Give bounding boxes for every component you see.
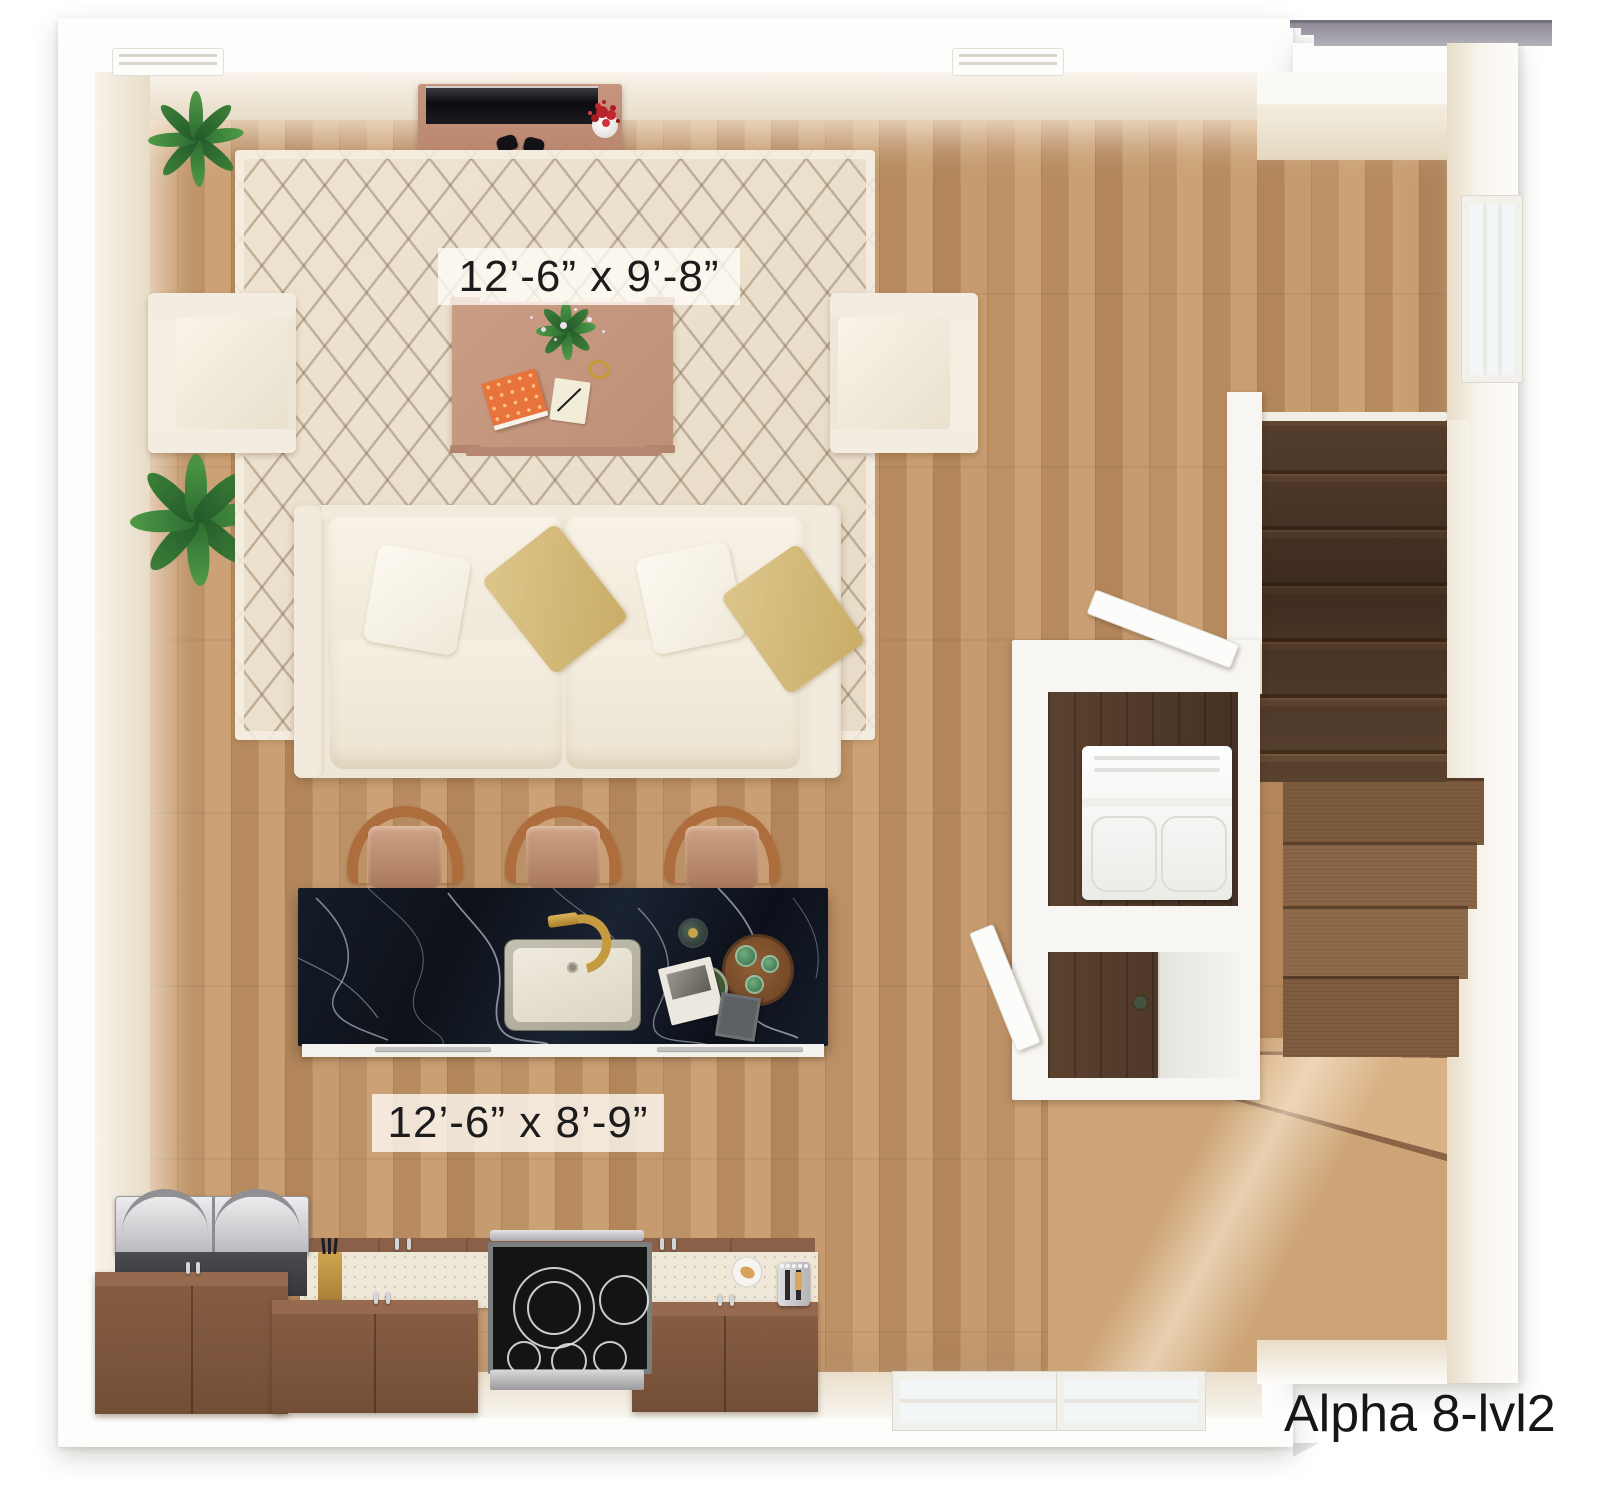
- cabinet-pull: [386, 1292, 390, 1304]
- foot-rail: [657, 1047, 803, 1051]
- armchair-right: [830, 293, 978, 453]
- notepad: [549, 378, 590, 425]
- pen: [557, 388, 581, 412]
- bar-stool: [664, 806, 780, 890]
- cabinet-pull: [407, 1238, 411, 1250]
- bar-stool: [505, 806, 621, 890]
- kitchen-dimension-label: 12’-6” x 8’-9”: [372, 1094, 664, 1152]
- sofa: [294, 505, 841, 778]
- base-cabinet: [95, 1272, 288, 1414]
- foot-rail: [375, 1047, 491, 1051]
- floorplan-page: 12’-6” x 9’-8”: [0, 0, 1600, 1500]
- base-cabinet: [272, 1300, 478, 1413]
- ceiling-vent: [952, 48, 1064, 76]
- cabinet-pull: [672, 1238, 676, 1250]
- tv: [426, 86, 598, 124]
- range-cooktop: [488, 1230, 646, 1392]
- napkin: [715, 992, 761, 1042]
- cabinet-pull: [660, 1238, 664, 1250]
- bar-stool: [347, 806, 463, 890]
- stacked-washer-dryer: [1082, 746, 1232, 900]
- door-hardware: [1134, 996, 1147, 1009]
- kitchen-dimension-text: 12’-6” x 8’-9”: [388, 1098, 649, 1148]
- ceiling-vent: [112, 48, 224, 76]
- armchair-left: [148, 293, 296, 453]
- stair-top-nosing: [1240, 412, 1447, 421]
- side-window: [1462, 196, 1522, 382]
- stair-soffit-face: [1257, 104, 1447, 160]
- red-flowers: [596, 106, 608, 118]
- stair-soffit: [1257, 72, 1447, 108]
- stair-winder-tread: [1283, 906, 1468, 979]
- cabinet-pull: [374, 1292, 378, 1304]
- corner-shadow: [1293, 1443, 1319, 1457]
- cabinet-pull: [196, 1262, 200, 1274]
- white-pillow: [362, 544, 472, 657]
- plan-title: Alpha 8-lvl2: [1284, 1384, 1544, 1440]
- bottom-window: [893, 1372, 1067, 1430]
- living-room-dimension-label: 12’-6” x 9’-8”: [438, 248, 740, 305]
- staircase-upper-run: [1240, 420, 1447, 782]
- wall-face-top: [95, 72, 1257, 120]
- toaster: [778, 1262, 810, 1306]
- stair-winder-tread: [1283, 976, 1459, 1057]
- cabinet-pull: [718, 1294, 722, 1306]
- living-room-dimension-text: 12’-6” x 9’-8”: [459, 252, 720, 302]
- bottom-window: [1057, 1372, 1205, 1430]
- base-cabinet: [632, 1302, 818, 1412]
- blossom-sprigs: [560, 322, 567, 329]
- marble-island: [298, 888, 828, 1046]
- plate-with-croissant: [733, 1258, 761, 1286]
- cabinet-pull: [395, 1238, 399, 1250]
- grill-appliance: [115, 1196, 309, 1256]
- bottle: [680, 920, 706, 946]
- wall-face-left: [95, 72, 150, 1370]
- sliding-door: [1158, 952, 1240, 1078]
- cabinet-pull: [730, 1294, 734, 1306]
- knife-block: [318, 1252, 342, 1304]
- cabinet-pull: [186, 1262, 190, 1274]
- wall-face-stair-bottom: [1257, 1340, 1447, 1384]
- stair-winder-tread: [1283, 842, 1477, 909]
- stair-winder-tread: [1283, 778, 1484, 845]
- serving-tray: [725, 937, 791, 1003]
- island-base: [302, 1044, 824, 1057]
